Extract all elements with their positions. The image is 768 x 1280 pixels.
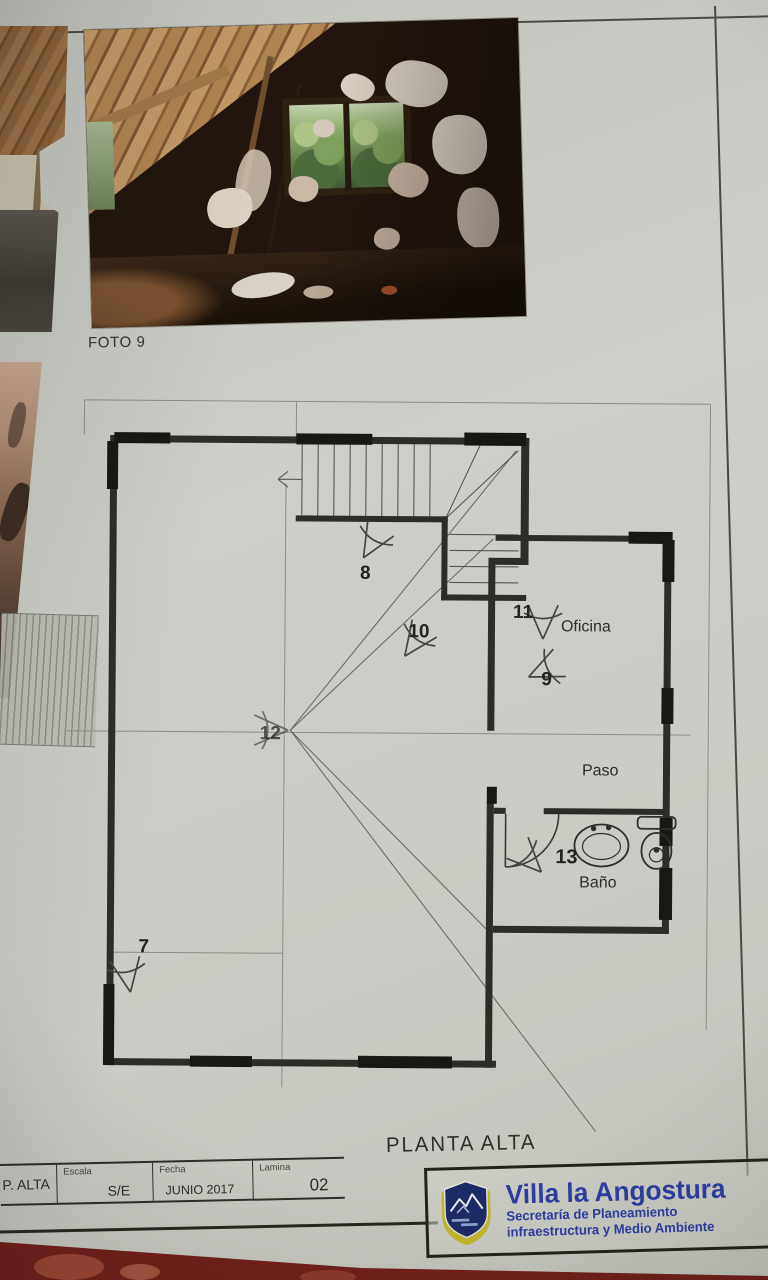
scale-value: S/E xyxy=(107,1182,130,1198)
plan-title: PLANTA ALTA xyxy=(386,1131,537,1158)
marker-numbers: 7 8 9 10 11 12 13 xyxy=(138,561,579,960)
title-block-sheet-number: Lamina 02 xyxy=(252,1159,345,1199)
org-text: Villa la Angostura Secretaría de Planeam… xyxy=(505,1176,726,1239)
room-label-paso: Paso xyxy=(582,762,619,779)
room-label-bano: Baño xyxy=(579,874,617,891)
burn-streak xyxy=(0,480,35,544)
photo-fragment-rafters xyxy=(0,26,68,155)
photo-shading xyxy=(84,18,526,328)
bathroom-door xyxy=(505,814,558,867)
marker-number-9: 9 xyxy=(541,669,552,690)
shield-icon xyxy=(437,1178,495,1246)
photo-fragment-ground xyxy=(0,210,68,332)
title-block: P. ALTA Escala S/E Fecha JUNIO 2017 Lami… xyxy=(0,1157,345,1206)
marker-number-11: 11 xyxy=(513,602,534,623)
marker-number-10: 10 xyxy=(408,621,429,642)
title-block-sheet-name: P. ALTA xyxy=(0,1165,57,1204)
windows xyxy=(103,430,675,1070)
marker-number-12: 12 xyxy=(260,723,281,744)
floor-plan: 7 8 9 10 11 12 13 Oficina Paso Baño xyxy=(39,386,734,1153)
roof-outline xyxy=(64,400,711,1090)
sink xyxy=(574,824,628,866)
table-pattern xyxy=(300,1270,356,1280)
photo-foto-9 xyxy=(84,18,526,328)
date-label: Fecha xyxy=(159,1164,186,1176)
photo-caption: FOTO 9 xyxy=(88,333,146,351)
stairs xyxy=(277,439,519,583)
scale-label: Escala xyxy=(63,1166,92,1178)
sheet-name-value: P. ALTA xyxy=(2,1176,50,1193)
date-value: JUNIO 2017 xyxy=(165,1182,234,1197)
photo-fragment-top-left xyxy=(0,26,68,332)
org-name: Villa la Angostura xyxy=(505,1176,725,1209)
marker-number-7: 7 xyxy=(138,936,149,957)
marker-number-8: 8 xyxy=(360,563,371,584)
burn-streak xyxy=(5,401,28,449)
sheet-number-value: 02 xyxy=(309,1175,328,1195)
title-block-date: Fecha JUNIO 2017 xyxy=(152,1161,253,1201)
sheet-border-bottom xyxy=(0,1221,438,1233)
room-label-oficina: Oficina xyxy=(561,618,611,635)
org-logo-box: Villa la Angostura Secretaría de Planeam… xyxy=(424,1158,768,1258)
sheet-number-label: Lamina xyxy=(259,1162,290,1174)
marker-number-13: 13 xyxy=(555,846,577,868)
title-block-scale: Escala S/E xyxy=(56,1163,153,1203)
walls xyxy=(106,435,672,1069)
table-pattern xyxy=(34,1254,104,1280)
table-pattern xyxy=(120,1264,160,1280)
